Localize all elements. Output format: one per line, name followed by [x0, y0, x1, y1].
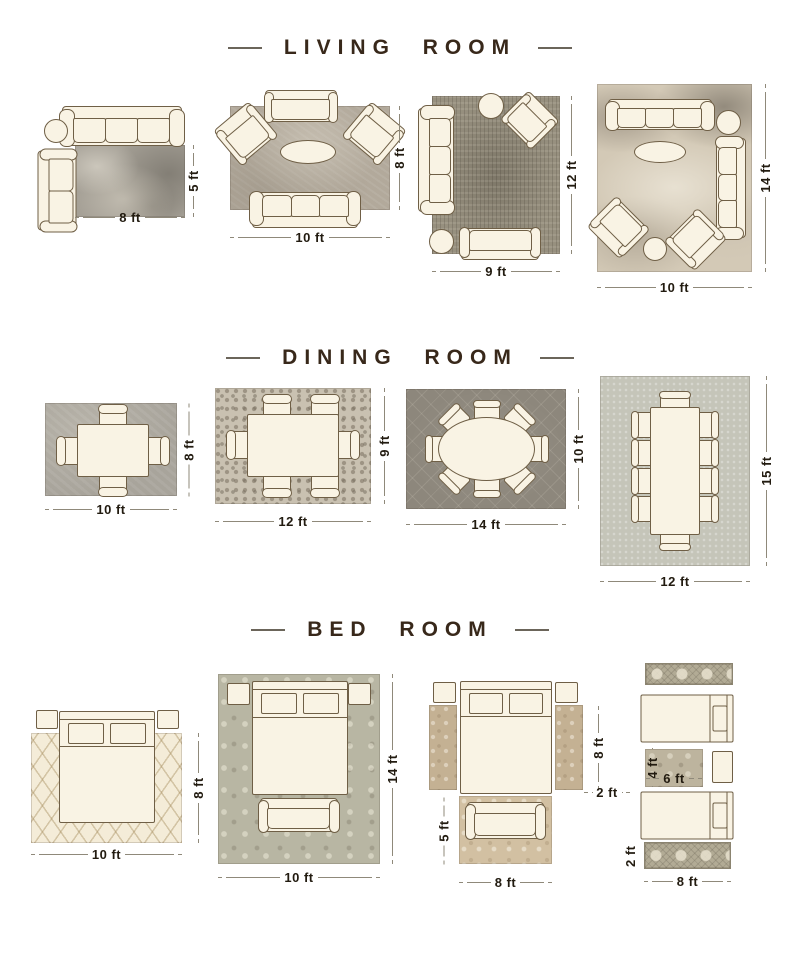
dimension-line [505, 524, 558, 525]
sofa-cushion [49, 159, 74, 192]
dimension-line [654, 778, 659, 779]
dimension-label: 10 ft [571, 434, 586, 463]
chair-back [711, 495, 719, 523]
dining-chair [697, 496, 717, 522]
dimension-label: 10 ft [284, 870, 313, 885]
dimension-width: 12 ft [600, 572, 750, 590]
chair-back [310, 394, 340, 403]
bed [59, 711, 155, 823]
sofa-cushion [291, 195, 320, 218]
dimension-height: 15 ft [757, 376, 775, 566]
dimension-foot-rug-height: 5 ft [435, 798, 453, 865]
dining-chair [697, 412, 717, 438]
sofa-arm [535, 804, 546, 840]
mattress-line [461, 716, 551, 717]
title-dash-left [251, 629, 285, 631]
dimension-width: 10 ft [218, 868, 380, 886]
dimension-width: 10 ft [45, 500, 177, 518]
dining-table [77, 424, 149, 477]
chair-back [541, 435, 549, 463]
runner-rug-bottom [644, 842, 731, 869]
dimension-line [702, 881, 723, 882]
sofa-cushion [319, 195, 348, 218]
nightstand [348, 683, 371, 705]
bench [260, 798, 338, 832]
sofa-cushion [105, 118, 138, 143]
dimension-line [467, 882, 491, 883]
nightstand [712, 751, 733, 783]
twin-bed [641, 695, 734, 743]
dimension-label: 8 ft [495, 875, 517, 890]
dimension-label: 8 ft [119, 210, 141, 225]
dimension-line [399, 173, 400, 202]
pillow [303, 693, 339, 714]
sofa-arm [700, 101, 714, 131]
sofa-seats [74, 118, 171, 143]
dimension-label: 15 ft [759, 456, 774, 485]
dimension-line [392, 788, 393, 856]
dimension-height: 8 ft [180, 404, 198, 497]
sofa-3-seat [252, 192, 358, 228]
dimension-runner-width: 8 ft [644, 872, 731, 890]
dimension-line [226, 877, 280, 878]
sofa-arm [329, 800, 340, 833]
sofa-cushion [718, 147, 737, 175]
dimension-line [652, 881, 673, 882]
dimension-label: 5 ft [436, 820, 451, 842]
dimension-line [223, 521, 274, 522]
dimension-height: 8 ft [390, 106, 408, 210]
chair-back [631, 495, 639, 523]
loveseat [265, 90, 337, 122]
dimension-label: 8 ft [392, 147, 407, 169]
chair-back [631, 439, 639, 467]
dimension-line [571, 104, 572, 156]
sofa-cushion [474, 813, 537, 836]
dimension-line [766, 490, 767, 558]
dimension-runner-width: 2 ft [584, 783, 630, 801]
nightstand [157, 710, 179, 729]
dimension-line [694, 581, 742, 582]
section-title-dining: DINING ROOM [0, 346, 800, 370]
sofa-seats [49, 159, 74, 223]
dimension-width: 10 ft [230, 228, 390, 246]
bed [460, 681, 552, 794]
dimension-label: 14 ft [758, 163, 773, 192]
dimension-label: 6 ft [663, 771, 685, 786]
dimension-line [443, 806, 444, 817]
dimension-height: 14 ft [383, 674, 401, 864]
pillow [712, 803, 727, 829]
sofa-cushion [49, 191, 74, 224]
dimension-width: 10 ft [31, 845, 182, 863]
sofa-seats [429, 118, 452, 202]
mattress-line [60, 746, 154, 747]
mattress-line [253, 717, 347, 718]
dining-table [247, 414, 339, 477]
dimension-label: 8 ft [677, 874, 699, 889]
loveseat [461, 228, 539, 260]
sofa-arm [169, 109, 185, 148]
runner-rug-right [555, 705, 583, 790]
chair-back [631, 467, 639, 495]
nightstand [433, 682, 456, 703]
sofa-seats [262, 195, 347, 218]
dimension-line [578, 397, 579, 430]
dimension-height: 8 ft [189, 733, 207, 843]
section-title-bedroom: BED ROOM [0, 618, 800, 642]
title-dash-left [226, 357, 260, 359]
sofa-3-seat [608, 99, 712, 130]
chair-back [473, 400, 501, 408]
sofa-cushion [429, 174, 452, 203]
title-dash-left [228, 47, 262, 49]
chair-back [56, 436, 65, 466]
dimension-line [689, 778, 694, 779]
sofa-cushion [645, 108, 674, 127]
dimension-line [188, 412, 189, 436]
dimension-line [53, 509, 92, 510]
dimension-line [443, 846, 444, 857]
nightstand [555, 682, 578, 703]
dimension-line [399, 114, 400, 143]
chair-back [226, 430, 235, 460]
dimension-label: 12 ft [564, 160, 579, 189]
dimension-line [145, 217, 177, 218]
dimension-line [766, 384, 767, 452]
dimension-line [765, 197, 766, 264]
sofa-cushion [137, 118, 170, 143]
dimension-line [193, 153, 194, 166]
dimension-label: 10 ft [92, 847, 121, 862]
dimension-line [312, 521, 363, 522]
chair-back [711, 411, 719, 439]
dimension-line [198, 741, 199, 773]
sofa-cushion [73, 118, 106, 143]
dimension-height: 10 ft [569, 389, 587, 509]
sofa-cushion [267, 808, 330, 829]
dimension-label: 9 ft [377, 435, 392, 457]
chair-back [425, 435, 433, 463]
dimension-line [578, 468, 579, 501]
runner-rug-top [645, 663, 733, 685]
dimension-line [414, 524, 467, 525]
chair-back [659, 543, 691, 551]
bench [467, 802, 544, 839]
dimension-line [765, 92, 766, 159]
dimension-label: 8 ft [591, 737, 606, 759]
dimension-line [384, 461, 385, 496]
dimension-label: 9 ft [485, 264, 507, 279]
chair-back [711, 467, 719, 495]
dimension-width: 12 ft [215, 512, 371, 530]
dimension-label: 10 ft [295, 230, 324, 245]
dimension-height: 14 ft [756, 84, 774, 272]
chair-back [160, 436, 169, 466]
chair-back [631, 411, 639, 439]
round-side-table [643, 237, 667, 261]
chair-back [473, 490, 501, 498]
sofa-cushion [718, 200, 737, 228]
chair-back [711, 439, 719, 467]
dimension-line [39, 854, 88, 855]
chair-back [310, 488, 340, 497]
section-title-living: LIVING ROOM [0, 36, 800, 60]
pillow [469, 693, 503, 714]
dimension-foot-rug-width: 8 ft [459, 873, 552, 891]
pillow [712, 706, 727, 732]
sofa-cushion [262, 195, 291, 218]
dimension-line [598, 714, 599, 733]
section-title-text: DINING ROOM [282, 346, 518, 370]
sofa-cushion [429, 118, 452, 147]
sofa-seats [618, 108, 702, 127]
dimension-label: 10 ft [660, 280, 689, 295]
nightstand [36, 710, 58, 729]
dimension-line [198, 803, 199, 835]
sofa-cushion [673, 108, 702, 127]
dimension-height: 5 ft [184, 145, 202, 217]
chair-back [98, 487, 128, 496]
headboard [461, 689, 551, 690]
sofa-3-seat [418, 108, 454, 212]
chair-back [350, 430, 359, 460]
dimension-label: 5 ft [186, 170, 201, 192]
round-side-table [716, 110, 741, 135]
round-side-table [478, 93, 504, 119]
dimension-line [392, 682, 393, 750]
dimension-line [329, 237, 382, 238]
dimension-line [440, 271, 481, 272]
dimension-line [571, 194, 572, 246]
dimension-width: 8 ft [75, 208, 185, 226]
section-title-text: BED ROOM [307, 618, 493, 642]
dimension-label: 2 ft [596, 785, 618, 800]
dimension-line [193, 196, 194, 209]
dimension-line [130, 509, 169, 510]
sofa-seats [268, 808, 330, 829]
bed [252, 681, 348, 795]
dimension-runner-height: 2 ft [621, 839, 639, 875]
dimension-label: 14 ft [385, 754, 400, 783]
rug-8x5 [75, 145, 185, 217]
dimension-label: 14 ft [471, 517, 500, 532]
oval-coffee-table [634, 141, 686, 163]
sofa-cushion [429, 146, 452, 175]
dimension-line [238, 237, 291, 238]
dimension-small-rug-width: 6 ft [646, 769, 702, 787]
sofa-seats [475, 813, 537, 836]
sofa-cushion [469, 231, 532, 251]
dimension-line [605, 287, 656, 288]
sofa-cushion [271, 99, 329, 119]
dimension-line [608, 581, 656, 582]
pillow [110, 723, 146, 744]
headboard [253, 689, 347, 690]
dimension-width: 9 ft [432, 262, 560, 280]
sofa-seats [272, 99, 329, 119]
dimension-line [384, 396, 385, 431]
loveseat [38, 151, 77, 231]
dimension-label: 12 ft [278, 514, 307, 529]
title-dash-right [515, 629, 549, 631]
dimension-line [83, 217, 115, 218]
dimension-runner-height: 8 ft [589, 706, 607, 790]
sofa-seats [718, 148, 737, 228]
sofa-cushion [617, 108, 646, 127]
dining-table [650, 407, 700, 535]
section-title-text: LIVING ROOM [284, 36, 516, 60]
mattress-line [710, 793, 711, 839]
dimension-line [511, 271, 552, 272]
sofa-3-seat [716, 138, 746, 238]
dimension-line [693, 287, 744, 288]
sofa-seats [469, 231, 531, 251]
dimension-label: 10 ft [96, 502, 125, 517]
rug-size-guide: LIVING ROOM 8 ft 5 ft 10 ft 8 ft 9 ft 12… [0, 0, 800, 978]
dimension-height: 12 ft [562, 96, 580, 254]
dimension-width: 10 ft [597, 278, 752, 296]
title-dash-right [540, 357, 574, 359]
dimension-line [318, 877, 372, 878]
dimension-line [598, 763, 599, 782]
chair-back [98, 404, 128, 413]
pillow [261, 693, 297, 714]
round-side-table [44, 119, 68, 143]
dimension-label: 8 ft [181, 439, 196, 461]
headboard [60, 719, 154, 720]
dimension-width: 14 ft [406, 515, 566, 533]
dimension-label: 2 ft [623, 846, 638, 868]
dimension-line [520, 882, 544, 883]
title-dash-right [538, 47, 572, 49]
runner-rug-left [429, 705, 457, 790]
oval-dining-table [438, 417, 535, 481]
dimension-label: 12 ft [660, 574, 689, 589]
round-side-table [429, 229, 454, 254]
dimension-height: 9 ft [375, 388, 393, 504]
mattress-line [710, 696, 711, 742]
dimension-line [188, 465, 189, 489]
chair-back [659, 391, 691, 399]
nightstand [227, 683, 250, 705]
dining-chair [697, 468, 717, 494]
chair-back [262, 394, 292, 403]
sofa-cushion [718, 174, 737, 202]
dimension-label: 8 ft [191, 777, 206, 799]
pillow [509, 693, 543, 714]
twin-bed [641, 792, 734, 840]
pillow [68, 723, 104, 744]
oval-coffee-table [280, 140, 336, 164]
dimension-line [125, 854, 174, 855]
sofa-3-seat [62, 106, 182, 146]
dining-chair [697, 440, 717, 466]
chair-back [262, 488, 292, 497]
